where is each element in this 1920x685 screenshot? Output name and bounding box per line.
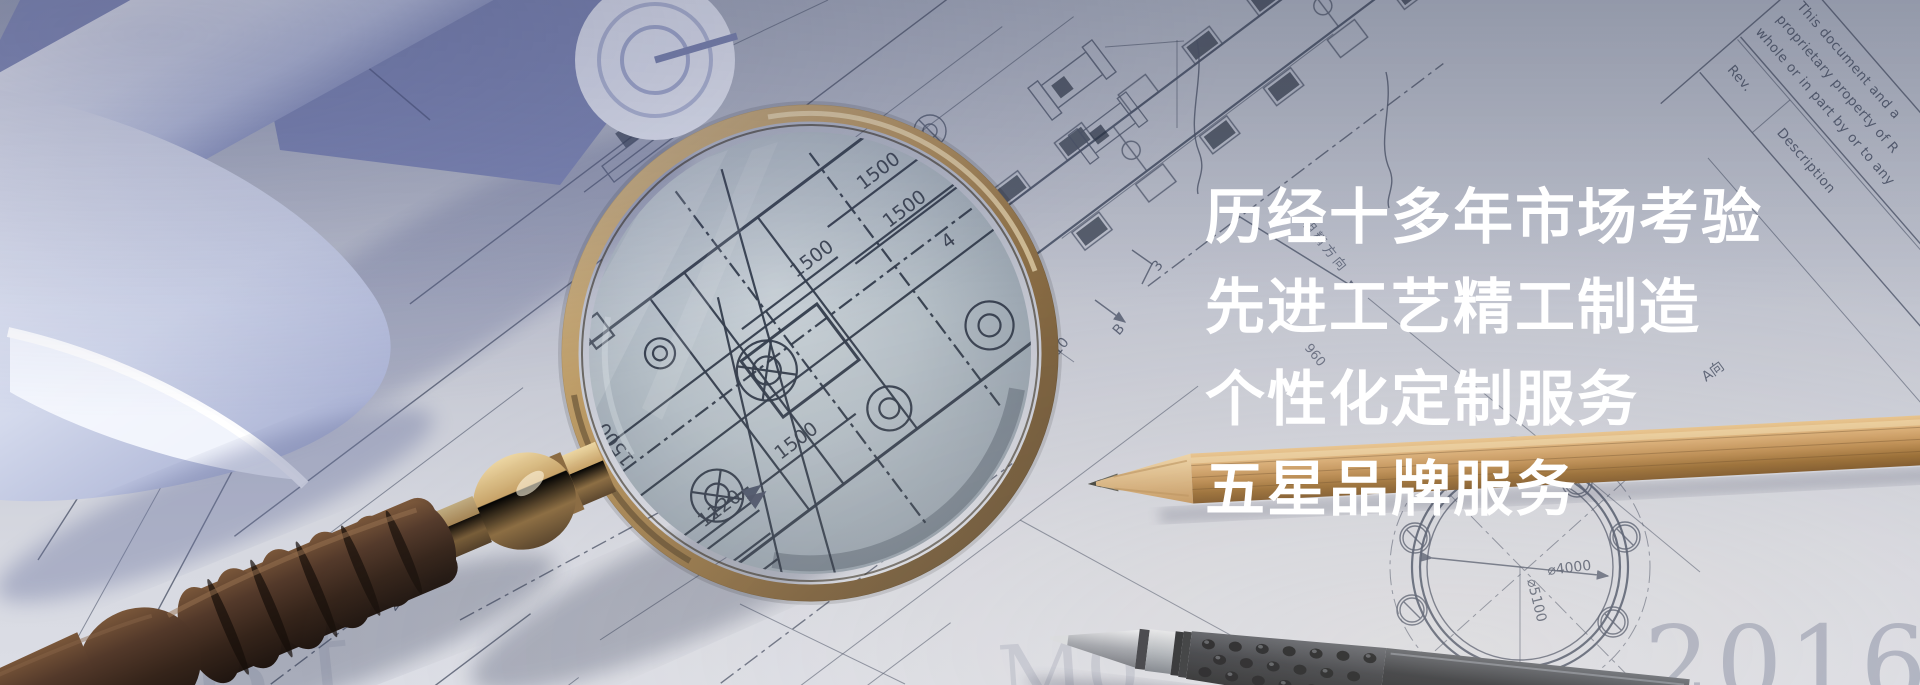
hero-banner: B f M0 2016— <box>0 0 1920 685</box>
headline-line-2: 先进工艺精工制造 <box>1205 273 1701 343</box>
headline-line-1: 历经十多年市场考验 <box>1205 183 1763 253</box>
hero-banner-image: B f M0 2016— <box>0 0 1920 685</box>
headline-line-4: 五星品牌服务 <box>1205 455 1577 525</box>
headline-line-3: 个性化定制服务 <box>1205 365 1639 435</box>
